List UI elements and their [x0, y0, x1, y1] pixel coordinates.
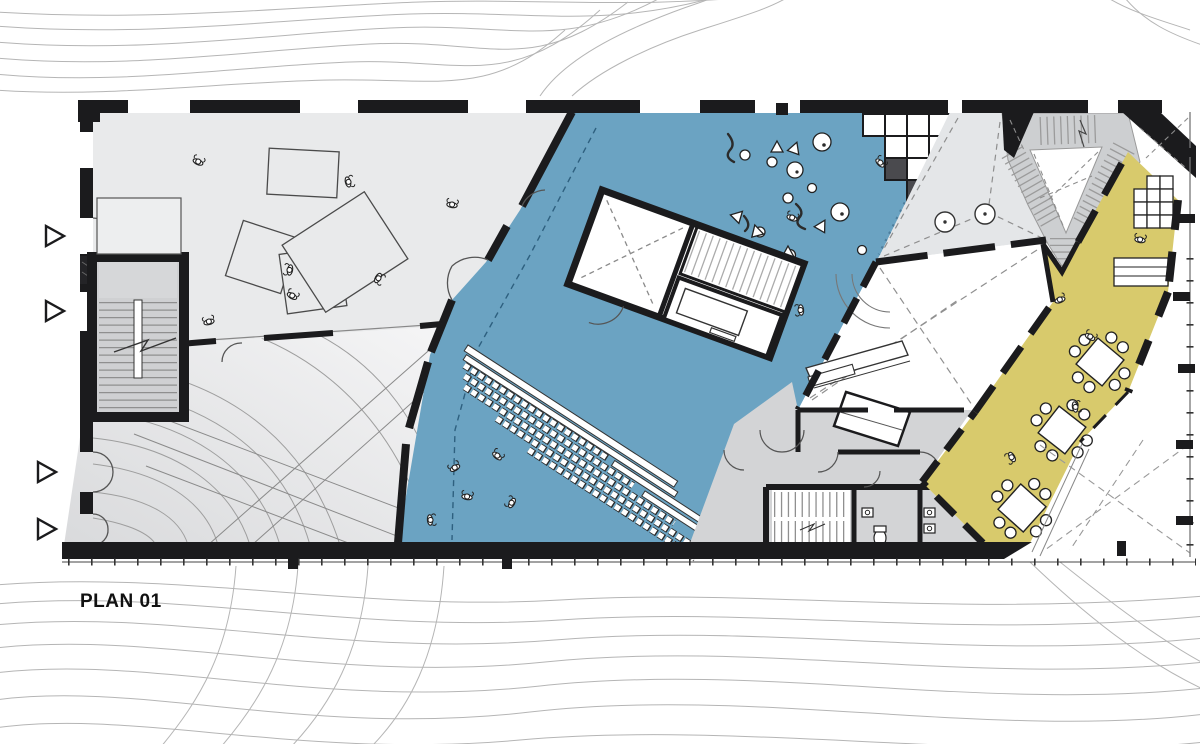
- cafe-shelf-rows: [1114, 258, 1168, 286]
- service-stair: [772, 490, 850, 548]
- floor-plan-drawing: PLAN 01: [0, 0, 1200, 744]
- floor-plan-page: PLAN 01: [0, 0, 1200, 744]
- page-title: PLAN 01: [80, 591, 162, 612]
- left-stairwell: [92, 198, 184, 417]
- entry-arrow-icon: [38, 226, 64, 539]
